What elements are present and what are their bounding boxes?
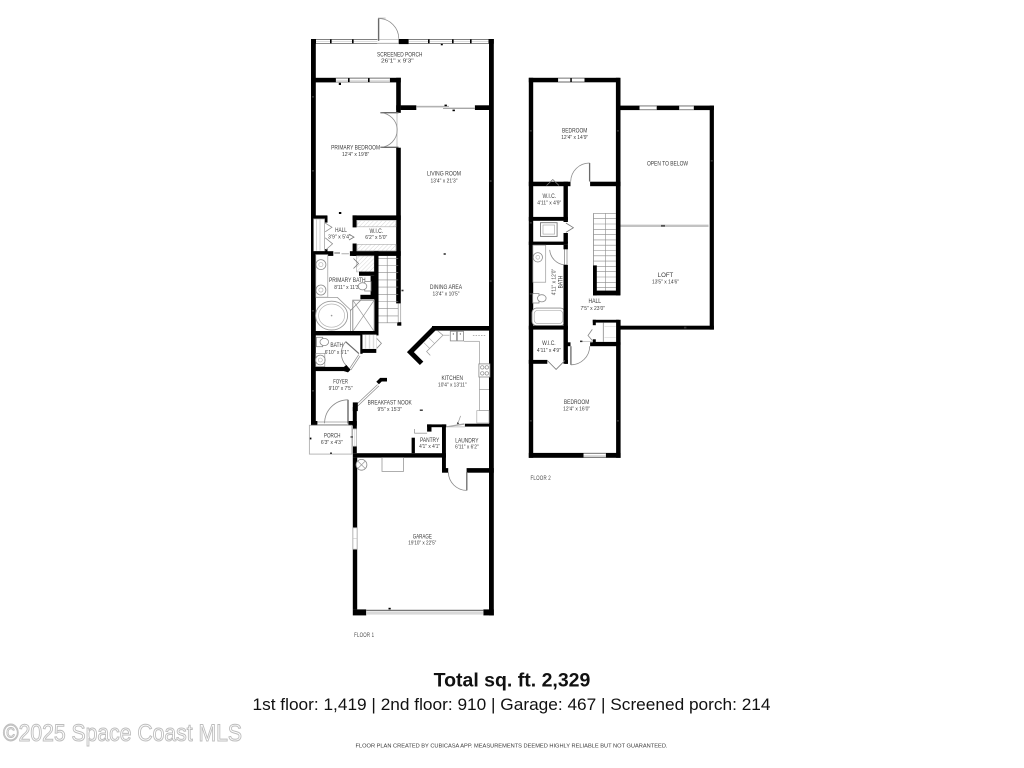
svg-text:13'4" x 21'3": 13'4" x 21'3"	[431, 178, 458, 184]
svg-text:8'11" x 11'3": 8'11" x 11'3"	[334, 285, 360, 291]
svg-text:4'11" x 12'0": 4'11" x 12'0"	[552, 269, 558, 296]
svg-text:12'4" x 19'8": 12'4" x 19'8"	[342, 152, 369, 158]
svg-text:13'5" x 14'6": 13'5" x 14'6"	[652, 280, 679, 286]
svg-text:©2025 Space Coast MLS: ©2025 Space Coast MLS	[3, 720, 242, 747]
svg-text:LOFT: LOFT	[658, 273, 674, 279]
svg-text:W.I.C.: W.I.C.	[542, 341, 556, 347]
svg-text:6'10" x 5'1": 6'10" x 5'1"	[325, 350, 349, 356]
svg-text:9'10" x 7'5": 9'10" x 7'5"	[329, 386, 353, 392]
svg-text:BEDROOM: BEDROOM	[562, 128, 587, 134]
svg-text:4'11" x 4'9": 4'11" x 4'9"	[537, 348, 561, 354]
svg-text:PRIMARY BEDROOM: PRIMARY BEDROOM	[331, 145, 380, 151]
svg-text:3'9" x 5'4": 3'9" x 5'4"	[328, 235, 351, 241]
svg-text:1st floor: 1,419 | 2nd floor:: 1st floor: 1,419 | 2nd floor: 910 | Gara…	[253, 695, 771, 714]
svg-text:9'5" x 15'3": 9'5" x 15'3"	[377, 407, 402, 413]
svg-text:LAUNDRY: LAUNDRY	[455, 438, 478, 444]
svg-text:13'4" x 10'5": 13'4" x 10'5"	[433, 292, 460, 298]
svg-text:GARAGE: GARAGE	[413, 534, 432, 540]
svg-text:W.I.C.: W.I.C.	[370, 229, 384, 235]
svg-text:HALL: HALL	[588, 299, 601, 305]
svg-text:6'11" x 6'2": 6'11" x 6'2"	[455, 445, 479, 451]
svg-text:PORCH: PORCH	[324, 433, 341, 439]
svg-text:6'3" x 4'3": 6'3" x 4'3"	[321, 440, 343, 446]
svg-text:BATH: BATH	[330, 343, 343, 349]
svg-text:7'5" x 23'0": 7'5" x 23'0"	[581, 306, 606, 312]
svg-text:DINING AREA: DINING AREA	[430, 285, 462, 291]
svg-text:12'4" x 14'9": 12'4" x 14'9"	[561, 135, 588, 141]
svg-text:12'4" x 16'0": 12'4" x 16'0"	[563, 407, 590, 413]
svg-text:FLOOR PLAN CREATED BY CUBICASA: FLOOR PLAN CREATED BY CUBICASA APP. MEAS…	[356, 744, 668, 750]
svg-text:FLOOR 2: FLOOR 2	[531, 476, 552, 482]
svg-text:FOYER: FOYER	[333, 379, 348, 385]
svg-text:10'4" x 13'11": 10'4" x 13'11"	[438, 383, 467, 389]
svg-text:W.I.C.: W.I.C.	[543, 194, 557, 200]
svg-text:LIVING ROOM: LIVING ROOM	[427, 172, 461, 178]
svg-text:KITCHEN: KITCHEN	[442, 376, 464, 382]
svg-text:BEDROOM: BEDROOM	[564, 400, 589, 406]
svg-text:4'1" x 4'1": 4'1" x 4'1"	[419, 444, 440, 450]
svg-text:6'2" x 5'0": 6'2" x 5'0"	[365, 235, 387, 241]
svg-text:19'10" x 22'5": 19'10" x 22'5"	[408, 541, 436, 547]
svg-text:26'1" x 9'3": 26'1" x 9'3"	[381, 59, 414, 65]
svg-text:Total sq. ft. 2,329: Total sq. ft. 2,329	[434, 670, 591, 692]
svg-text:HALL: HALL	[335, 228, 347, 234]
svg-text:PANTRY: PANTRY	[420, 438, 439, 444]
svg-text:4'11" x 4'9": 4'11" x 4'9"	[537, 201, 561, 207]
svg-text:OPEN TO BELOW: OPEN TO BELOW	[647, 162, 688, 168]
svg-text:FLOOR 1: FLOOR 1	[354, 633, 374, 639]
svg-text:BREAKFAST NOOK: BREAKFAST NOOK	[368, 401, 412, 407]
svg-text:SCREENED PORCH: SCREENED PORCH	[377, 52, 422, 58]
